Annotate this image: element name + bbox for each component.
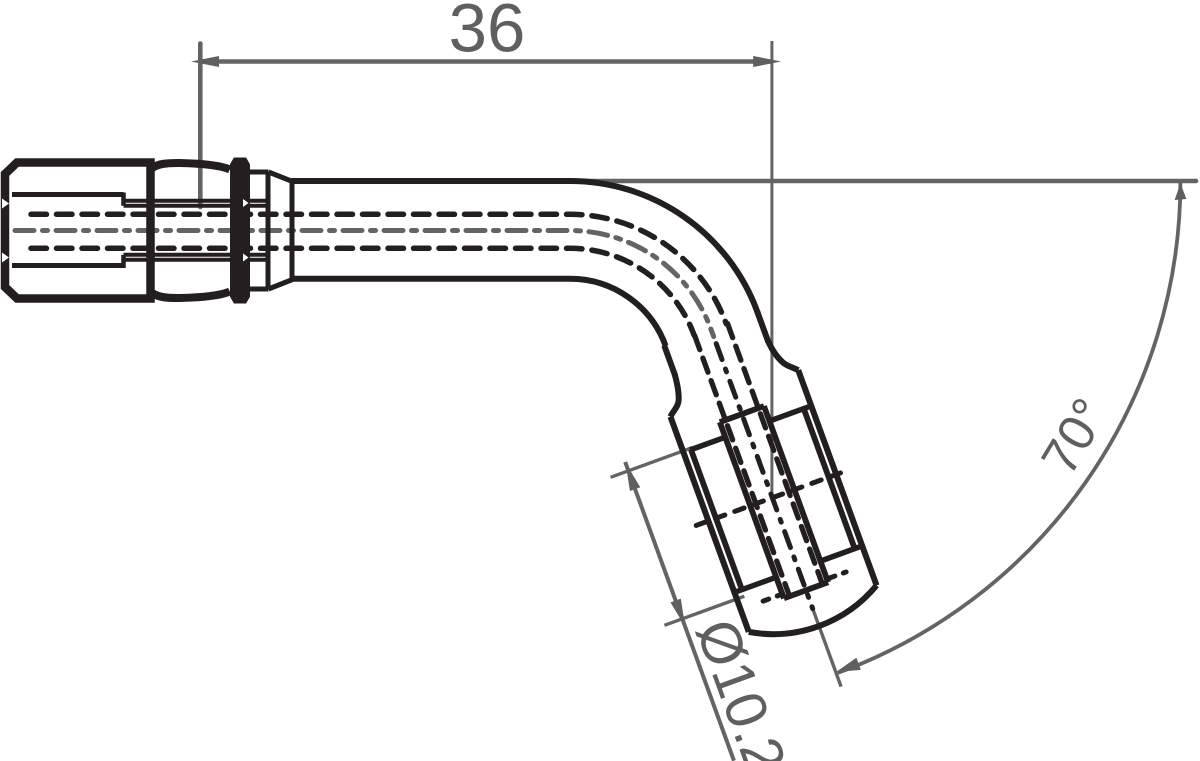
svg-text:36: 36 bbox=[449, 0, 526, 67]
